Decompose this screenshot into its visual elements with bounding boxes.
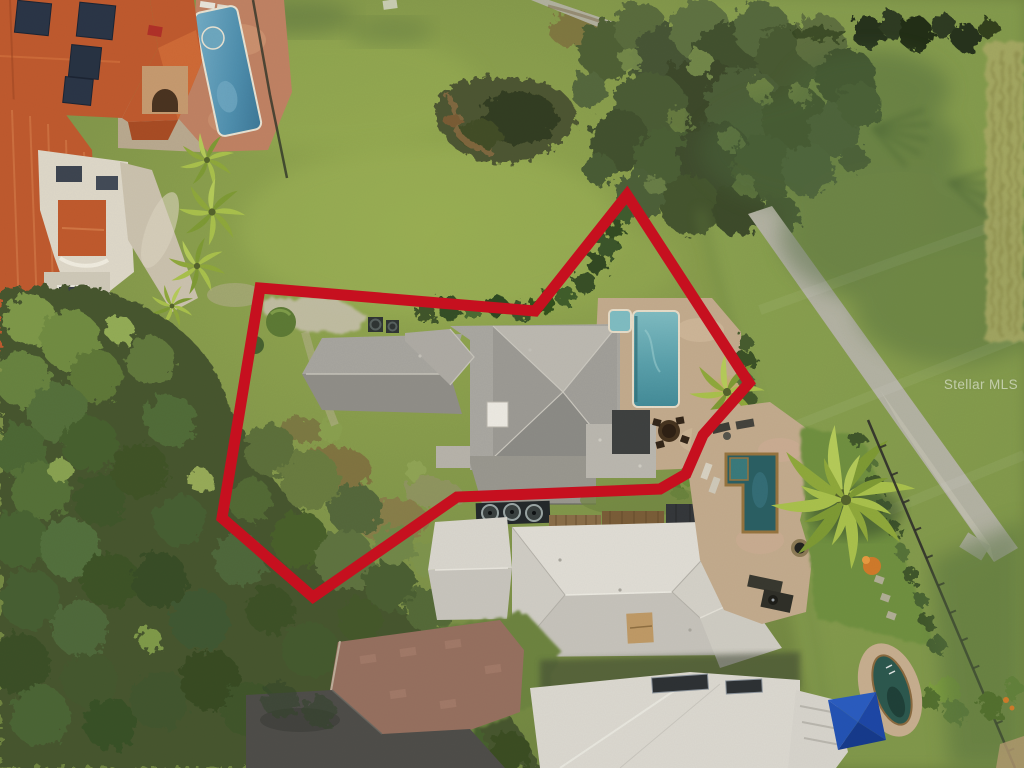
photo-grain	[0, 0, 1024, 768]
aerial-photo-canvas	[0, 0, 1024, 768]
watermark: Stellar MLS	[900, 377, 1018, 392]
aerial-photo: Stellar MLS	[0, 0, 1024, 768]
